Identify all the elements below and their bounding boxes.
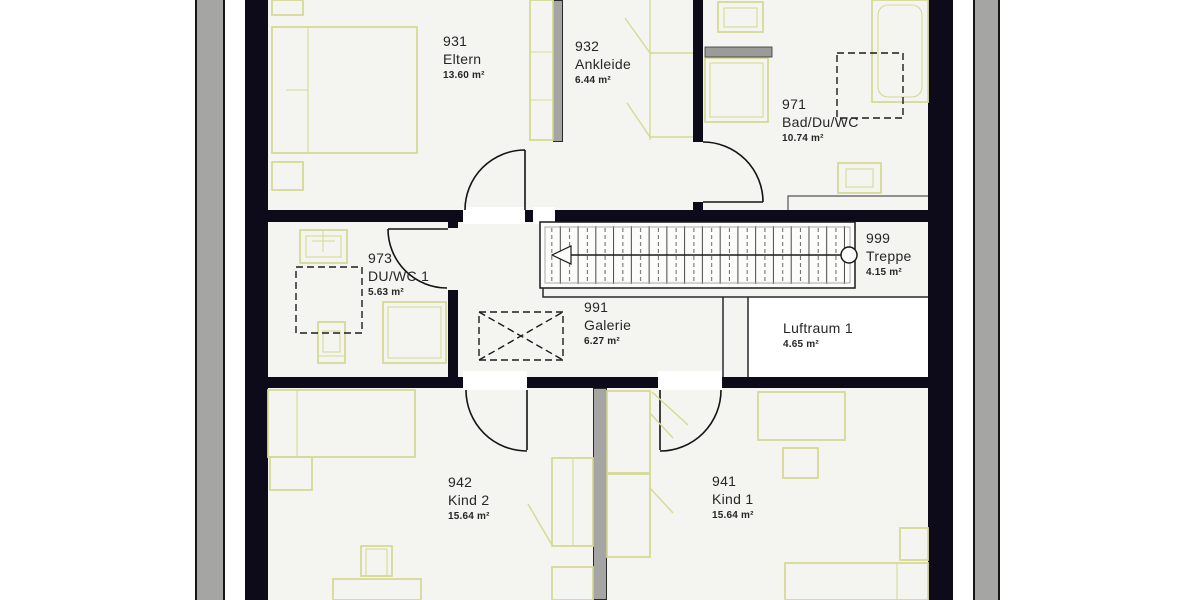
room-number: 931 — [443, 33, 485, 49]
wardrobe-kind1 — [607, 391, 650, 473]
nightstand — [272, 0, 303, 15]
room-area: 5.63 m² — [368, 287, 429, 299]
bathtub — [872, 0, 928, 102]
room-area: 6.27 m² — [584, 336, 631, 348]
room-label-luftraum: Luftraum 1 4.65 m² — [783, 318, 853, 351]
room-name: Eltern — [443, 51, 485, 67]
chair-kind1 — [783, 448, 818, 478]
room-number: 941 — [712, 473, 754, 489]
nightstand — [272, 162, 303, 190]
wardrobe-kind2 — [552, 567, 593, 600]
wardrobe-ankleide — [625, 0, 693, 140]
room-area: 6.44 m² — [575, 75, 631, 87]
room-label-duwc1: 973 DU/WC 1 5.63 m² — [368, 250, 429, 299]
room-number: 999 — [866, 230, 912, 246]
room-name: Kind 2 — [448, 492, 490, 508]
room-label-bad: 971 Bad/Du/WC 10.74 m² — [782, 96, 859, 145]
room-area: 15.64 m² — [712, 510, 754, 522]
room-area: 15.64 m² — [448, 511, 490, 523]
galerie-opening-symbol — [479, 312, 563, 360]
nightstand — [900, 528, 928, 560]
room-name: Treppe — [866, 248, 912, 264]
room-name: Kind 1 — [712, 491, 754, 507]
stair-walkline-start-circle — [841, 247, 857, 263]
room-name: Ankleide — [575, 56, 631, 72]
vanity-counter-bad — [788, 196, 928, 210]
room-area: 4.65 m² — [783, 339, 853, 351]
nightstand — [270, 457, 312, 490]
door-bad — [703, 142, 763, 202]
room-label-treppe: 999 Treppe 4.15 m² — [866, 230, 912, 279]
shower-duwc1 — [383, 302, 446, 363]
door-eltern — [465, 150, 525, 210]
shower-clearance-dashed — [296, 267, 362, 333]
room-label-kind2: 942 Kind 2 15.64 m² — [448, 474, 490, 523]
room-label-galerie: 991 Galerie 6.27 m² — [584, 299, 631, 348]
stairs — [540, 222, 857, 288]
room-label-kind1: 941 Kind 1 15.64 m² — [712, 473, 754, 522]
room-number: 991 — [584, 299, 631, 315]
room-number: 932 — [575, 38, 631, 54]
bed-kind1 — [785, 563, 928, 600]
room-number: 973 — [368, 250, 429, 266]
shower-glass-panel — [705, 47, 772, 57]
room-name: Luftraum 1 — [783, 320, 853, 336]
floorplan-canvas: 931 Eltern 13.60 m² 932 Ankleide 6.44 m²… — [0, 0, 1200, 600]
room-name: DU/WC 1 — [368, 268, 429, 284]
bed-kind2 — [268, 390, 415, 457]
desk-kind2 — [333, 579, 421, 600]
room-name: Bad/Du/WC — [782, 114, 859, 130]
room-area: 13.60 m² — [443, 70, 485, 82]
shower-bad — [705, 58, 768, 122]
room-number: 971 — [782, 96, 859, 112]
room-label-eltern: 931 Eltern 13.60 m² — [443, 33, 485, 82]
wardrobe-eltern — [530, 0, 553, 140]
room-label-ankleide: 932 Ankleide 6.44 m² — [575, 38, 631, 87]
wc-duwc1 — [318, 322, 345, 363]
wardrobe-kind1 — [607, 474, 650, 557]
room-name: Galerie — [584, 317, 631, 333]
room-area: 10.74 m² — [782, 133, 859, 145]
wc-bad — [838, 163, 881, 193]
door-kind1 — [660, 390, 721, 451]
door-kind2 — [466, 390, 527, 451]
room-area: 4.15 m² — [866, 267, 912, 279]
room-number: 942 — [448, 474, 490, 490]
desk-kind1 — [758, 392, 845, 440]
